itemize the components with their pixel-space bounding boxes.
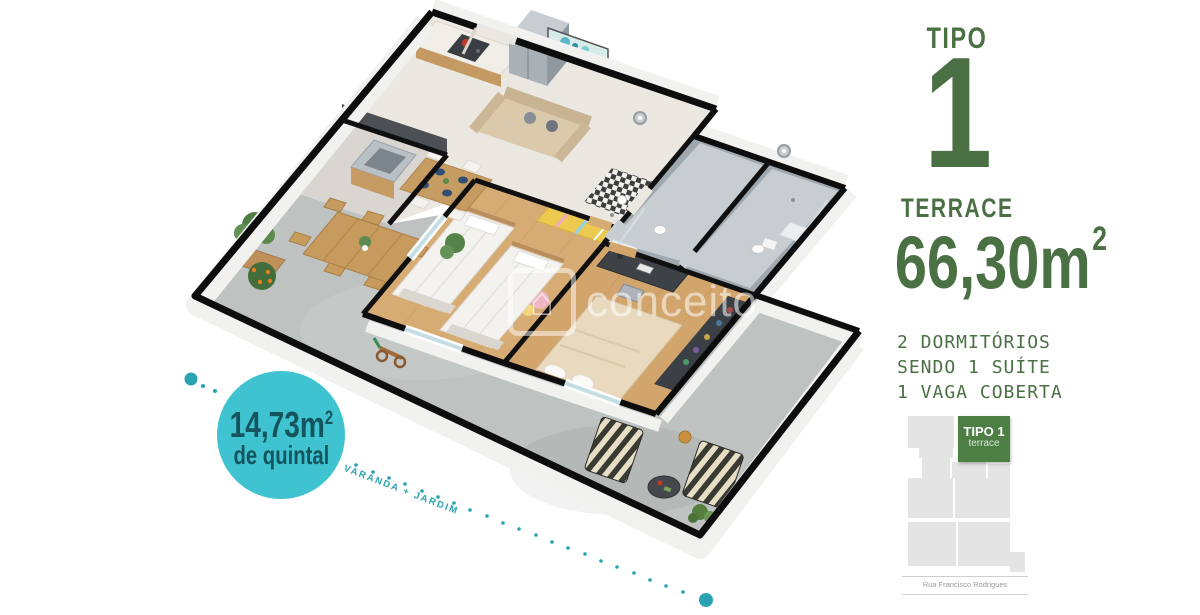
- site-plan-highlighted-unit: TIPO 1 terrace: [958, 416, 1010, 462]
- feature-suite: SENDO 1 SUÍTE: [897, 355, 1063, 380]
- street-line: [902, 594, 1028, 595]
- coffee-table: [648, 476, 680, 498]
- quintal-area-badge: 14,73m2 de quintal: [213, 367, 349, 503]
- site-plan-block: [955, 478, 1010, 518]
- site-plan-block: [958, 522, 1010, 566]
- site-plan-block: [908, 416, 954, 448]
- quintal-dotted-trail: [185, 373, 218, 394]
- site-plan-block: [952, 462, 986, 478]
- marketing-floorplan-image: ⌂ conceito 14,73m2 de quintal VARANDA + …: [0, 0, 1200, 615]
- street-name: Rua Francisco Rodrigues: [902, 580, 1028, 589]
- feature-bedrooms: 2 DORMITÓRIOS: [897, 330, 1063, 355]
- site-plan-unit-sublabel: terrace: [958, 439, 1010, 448]
- site-plan: TIPO 1 terrace Rua Francisco Rodrigues: [902, 412, 1030, 602]
- site-plan-unit-label: TIPO 1: [958, 424, 1010, 439]
- quintal-area-value: 14,73m2: [215, 402, 348, 442]
- site-plan-block: [908, 522, 956, 566]
- toilet: [654, 226, 666, 235]
- street-line: [902, 576, 1028, 577]
- unit-area: 66,30m2: [865, 226, 1105, 300]
- site-plan-block: [919, 448, 953, 458]
- site-plan-block: [988, 464, 1010, 478]
- quintal-area-caption: de quintal: [220, 442, 343, 468]
- pouf-stool: [679, 431, 691, 443]
- sink: [618, 196, 627, 205]
- unit-features: 2 DORMITÓRIOS SENDO 1 SUÍTE 1 VAGA COBER…: [897, 330, 1063, 405]
- unit-type-number: 1: [880, 38, 1035, 188]
- site-plan-block: [908, 478, 953, 518]
- site-plan-block: [1010, 552, 1025, 572]
- feature-parking: 1 VAGA COBERTA: [897, 380, 1063, 405]
- unit-type-name: TERRACE: [880, 193, 1035, 224]
- site-plan-block: [922, 458, 950, 478]
